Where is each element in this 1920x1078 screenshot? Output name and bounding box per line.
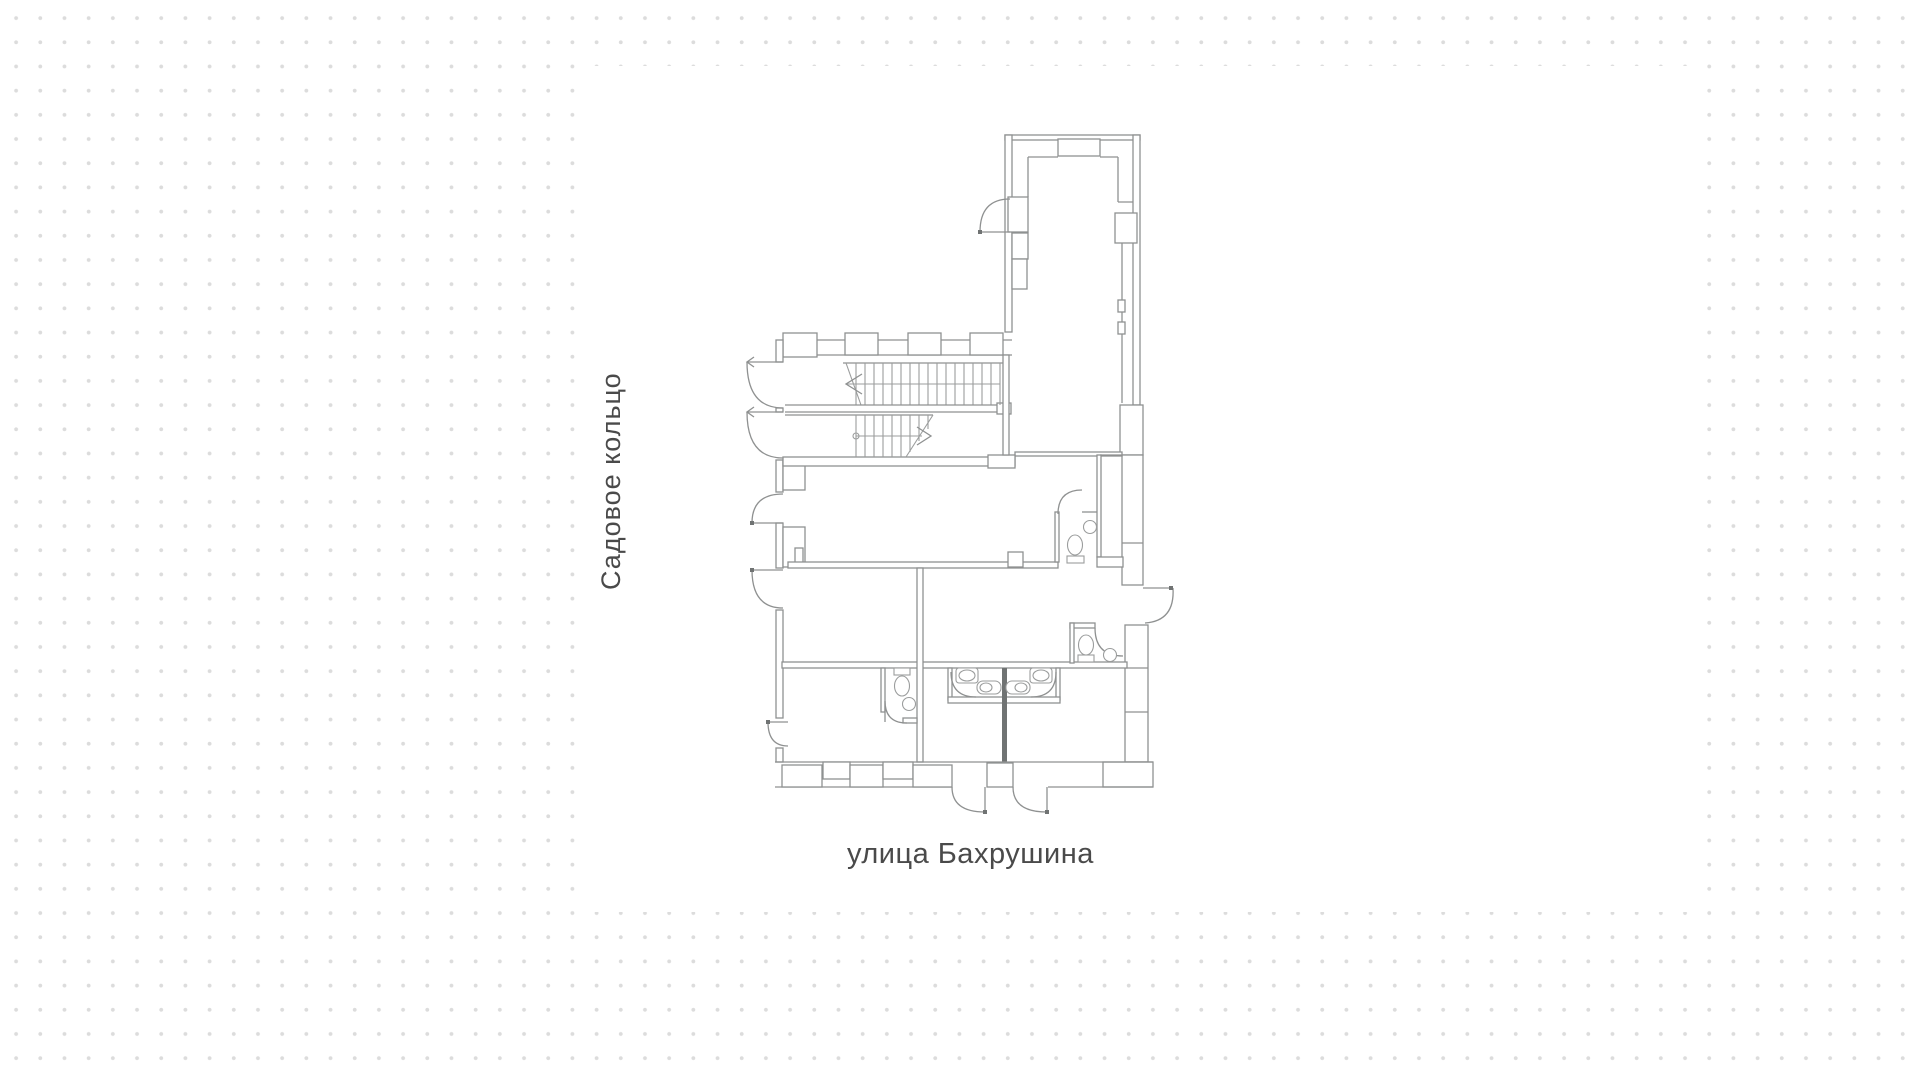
- door: [747, 412, 783, 458]
- wing-step: [1120, 405, 1143, 455]
- stair-landing: [785, 405, 997, 415]
- floor-plan-drawing: [0, 0, 1920, 1078]
- sink-symbol: [1084, 521, 1097, 534]
- door: [768, 722, 788, 746]
- wc-door: [1058, 490, 1082, 514]
- window: [782, 765, 822, 787]
- toilet-symbol: [1067, 556, 1084, 563]
- right-wall-lower: [1125, 625, 1148, 762]
- staircase: [785, 363, 1003, 457]
- window: [913, 765, 952, 787]
- corner-pier: [783, 333, 817, 357]
- toilet-symbol: [894, 668, 910, 675]
- dark-divider-wall: [1002, 668, 1007, 764]
- sink-symbol: [1104, 649, 1117, 662]
- right-wall-upper: [1122, 455, 1143, 585]
- sink-symbol: [903, 698, 916, 711]
- entrance-door-left: [952, 787, 985, 812]
- partition-wall: [917, 568, 923, 762]
- entrance-door-right: [1013, 787, 1047, 812]
- wing-right-wall: [1133, 135, 1140, 405]
- dot-grid-background: Садовое кольцо улица Бахрушина: [0, 0, 1920, 1078]
- door: [752, 570, 783, 608]
- window: [970, 333, 1003, 355]
- window: [850, 765, 883, 787]
- side-exit-door: [1143, 588, 1173, 623]
- wing-top-niche: [1058, 139, 1100, 156]
- stair-bottom-wall: [783, 457, 1015, 466]
- window: [845, 333, 878, 355]
- doors-group: [747, 199, 1173, 814]
- window: [908, 333, 941, 355]
- street-label-sadovoye-koltso: Садовое кольцо: [596, 378, 630, 590]
- street-label-ulitsa-bakhrushina: улица Бахрушина: [847, 838, 1094, 871]
- corridor-wall-b: [782, 662, 1127, 668]
- door: [752, 494, 783, 523]
- right-foot-wall: [1103, 762, 1153, 787]
- toilet-symbol: [1078, 655, 1094, 662]
- entrance-pier: [987, 763, 1013, 787]
- walls-group: [775, 135, 1153, 787]
- wing-left-wall: [1005, 135, 1012, 332]
- wing-door-jamb: [1008, 197, 1028, 232]
- door: [747, 362, 783, 408]
